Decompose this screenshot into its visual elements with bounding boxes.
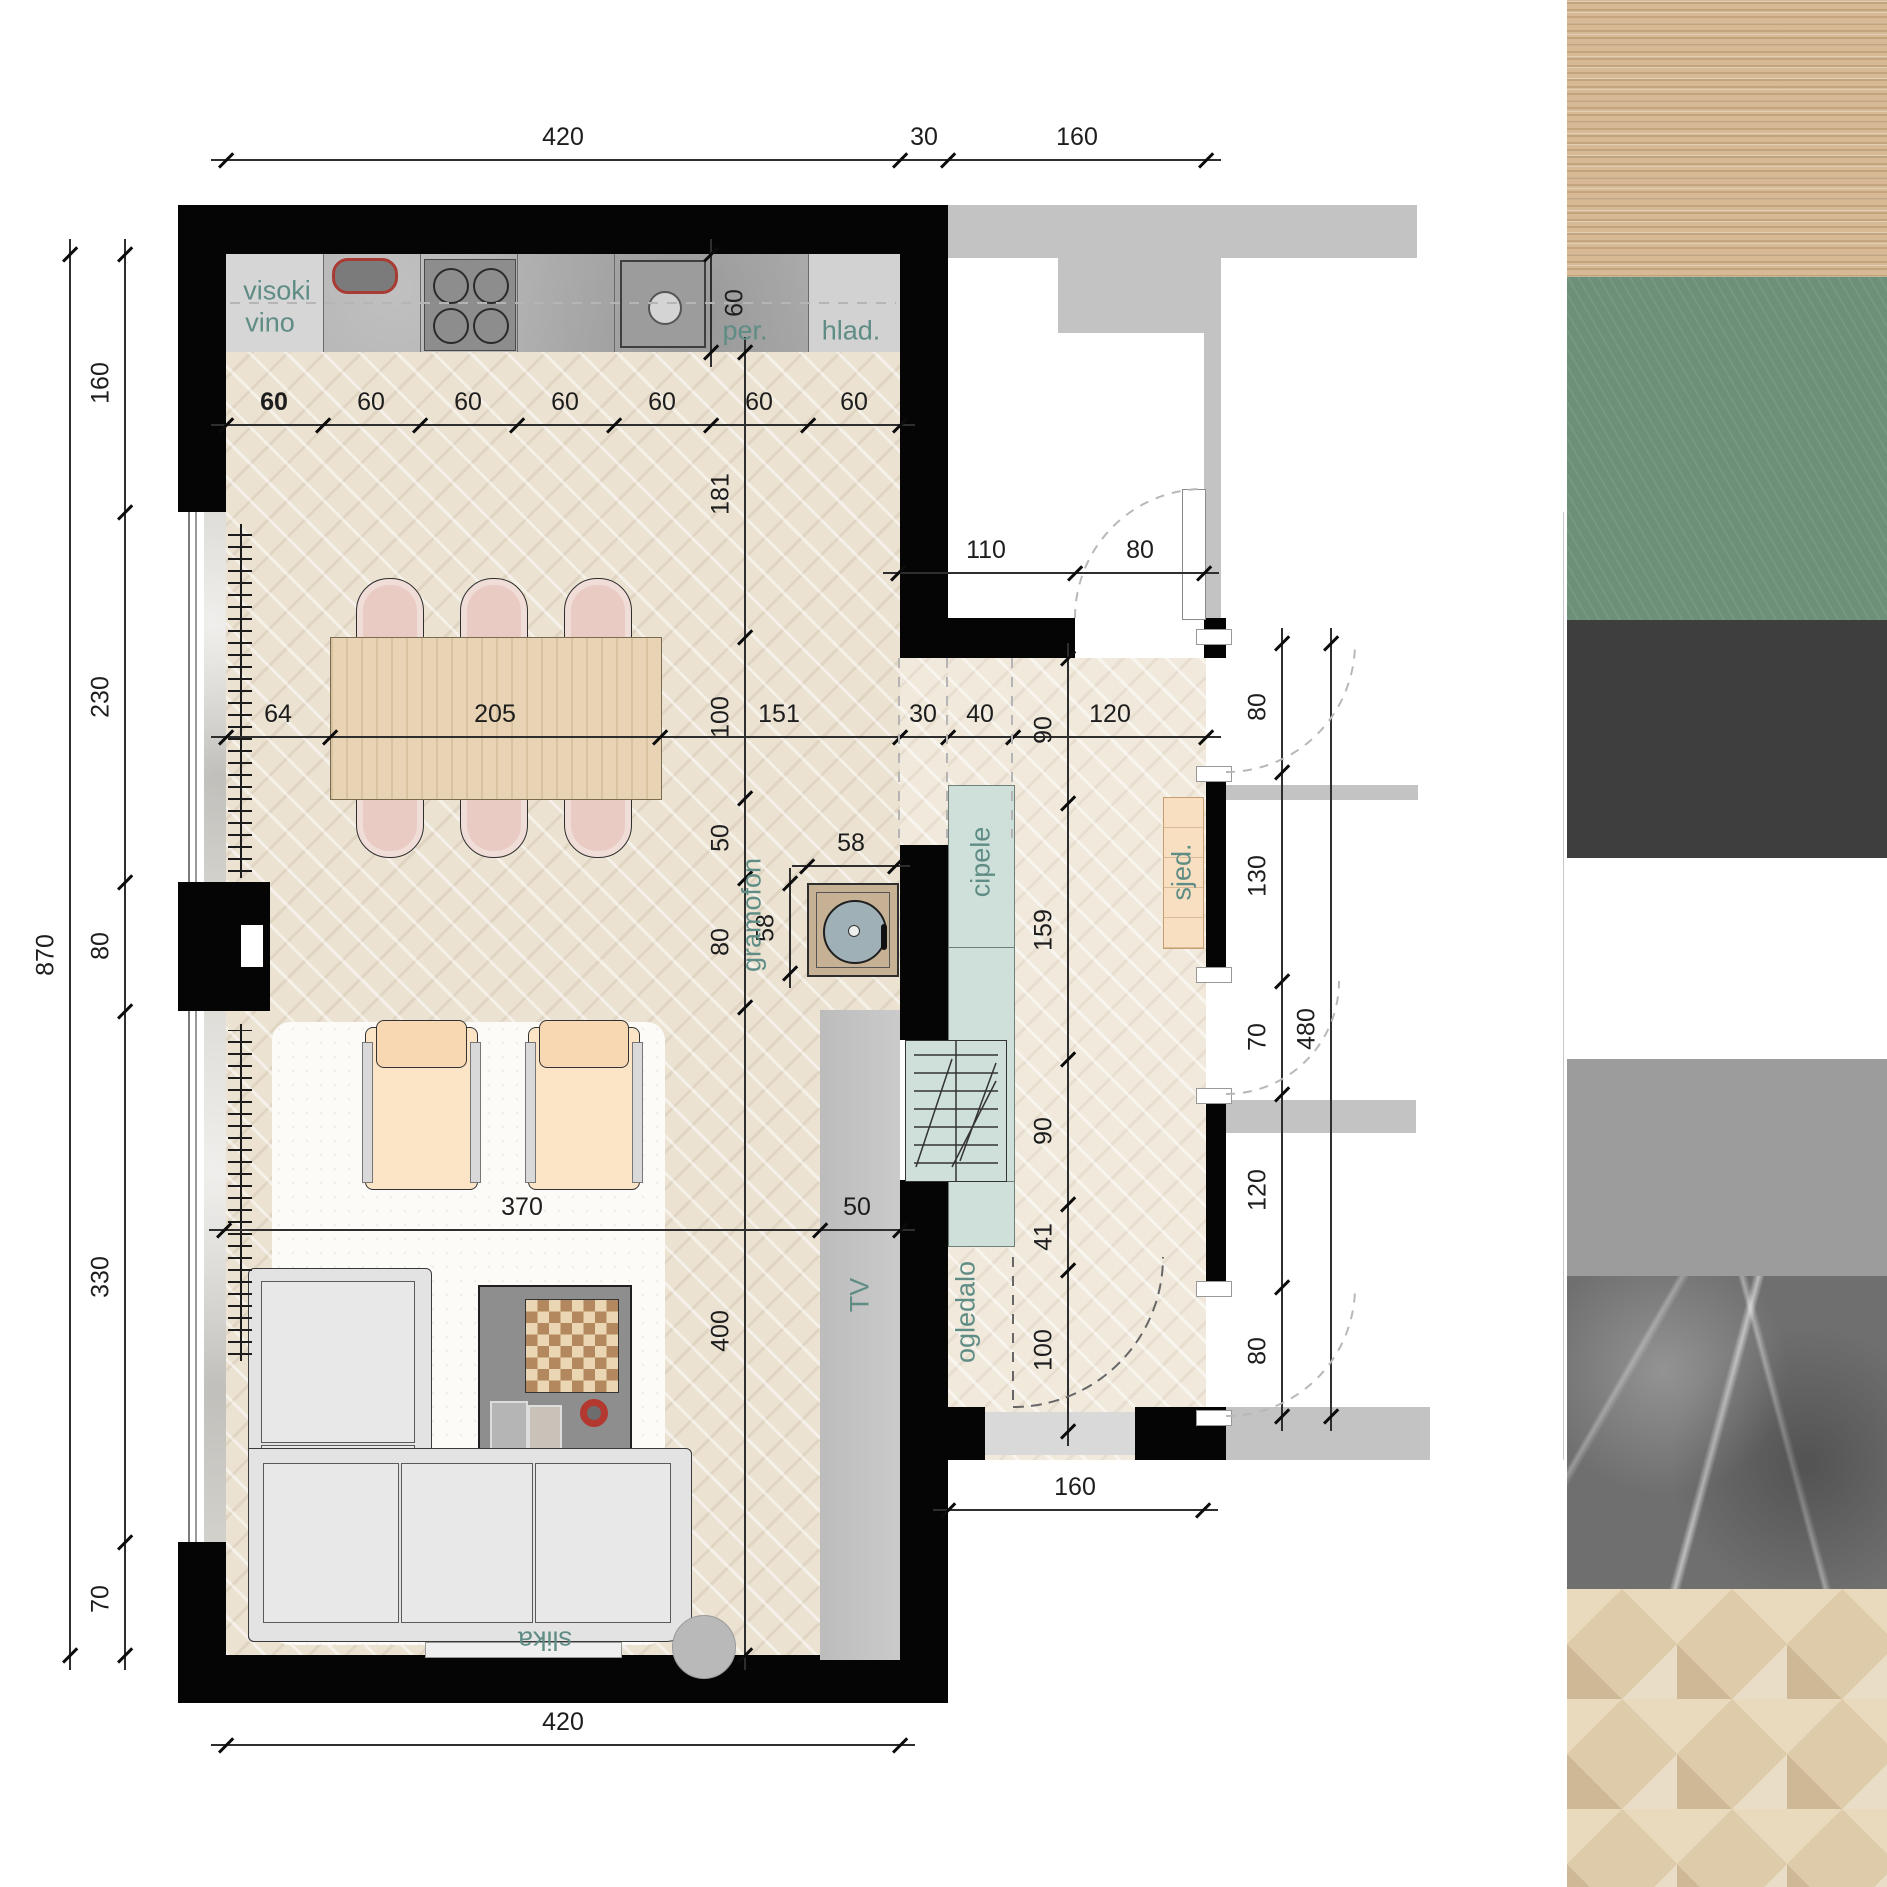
armchair-armrest bbox=[525, 1042, 536, 1183]
dim-label: 205 bbox=[474, 700, 516, 729]
door-jamb bbox=[1196, 766, 1232, 782]
dimension-line bbox=[1067, 643, 1069, 1446]
counter-divider bbox=[808, 254, 809, 352]
door-jamb bbox=[1196, 629, 1232, 645]
dim-label: 30 bbox=[909, 700, 937, 729]
dim-label: 70 bbox=[87, 1585, 116, 1613]
dim-label: 30 bbox=[910, 123, 938, 152]
dim-label: 330 bbox=[87, 1256, 116, 1298]
burner bbox=[473, 268, 509, 304]
armchair bbox=[528, 1027, 640, 1190]
armchair-armrest bbox=[470, 1042, 481, 1183]
dim-label: 151 bbox=[758, 700, 800, 729]
sofa-cushion bbox=[263, 1463, 399, 1623]
cooktop bbox=[424, 259, 516, 351]
dim-label: 120 bbox=[1089, 700, 1131, 729]
cabinet-division bbox=[949, 947, 1014, 948]
wall-hall-top bbox=[900, 618, 1075, 658]
dim-label: 160 bbox=[1056, 123, 1098, 152]
dim-label: 100 bbox=[1030, 1329, 1059, 1371]
dim-label: 159 bbox=[1030, 909, 1059, 951]
room-label: slika bbox=[518, 1625, 572, 1656]
dim-label: 60 bbox=[260, 388, 288, 417]
door-jamb bbox=[1196, 967, 1232, 983]
fireplace-opening bbox=[241, 925, 263, 967]
dimension-line bbox=[933, 1509, 1218, 1511]
room-label: gramofon bbox=[737, 858, 768, 972]
window-left-1 bbox=[178, 512, 226, 882]
sink-tap bbox=[648, 291, 682, 325]
door-jamb bbox=[1196, 1088, 1232, 1104]
armchair-armrest bbox=[632, 1042, 643, 1183]
vinyl-center bbox=[848, 925, 860, 937]
burner bbox=[473, 308, 509, 344]
dim-label: 130 bbox=[1244, 855, 1273, 897]
counter-divider bbox=[323, 254, 324, 352]
gray-wall-mid-band-1 bbox=[1226, 785, 1418, 800]
armchair-armrest bbox=[362, 1042, 373, 1183]
room-label: sjed. bbox=[1167, 843, 1198, 900]
wall-hall-right-1 bbox=[1206, 772, 1226, 981]
dim-label: 160 bbox=[87, 362, 116, 404]
window-glazing-line bbox=[188, 1011, 190, 1542]
swatch-herringbone-oak bbox=[1567, 1589, 1887, 1887]
dim-label: 60 bbox=[648, 388, 676, 417]
dim-label: 58 bbox=[837, 829, 865, 858]
window-glazing-line bbox=[195, 1011, 197, 1542]
dim-label: 60 bbox=[551, 388, 579, 417]
sofa-cushion bbox=[535, 1463, 671, 1623]
dim-label: 60 bbox=[745, 388, 773, 417]
gray-wall-mid-band-2 bbox=[1226, 1100, 1416, 1133]
dim-label: 90 bbox=[1030, 1117, 1059, 1145]
sofa-cushion bbox=[261, 1281, 415, 1443]
dimension-line bbox=[1281, 628, 1283, 1431]
gray-wall-top-band bbox=[948, 205, 1417, 258]
chessboard bbox=[525, 1299, 619, 1393]
dim-label: 64 bbox=[264, 700, 292, 729]
dim-label: 100 bbox=[707, 696, 736, 738]
counter-red-sink bbox=[332, 258, 398, 294]
wall-top bbox=[178, 205, 948, 254]
dimension-line bbox=[211, 1744, 915, 1746]
armchair-headrest bbox=[376, 1020, 467, 1068]
dim-label: 160 bbox=[1054, 1473, 1096, 1502]
round-side-table bbox=[672, 1615, 736, 1679]
dim-label: 480 bbox=[1293, 1008, 1322, 1050]
gray-wall-top-column bbox=[1204, 333, 1221, 618]
counter-divider bbox=[614, 254, 615, 352]
dimension-line bbox=[69, 239, 71, 1670]
wall-left-upper bbox=[178, 205, 226, 512]
photo bbox=[528, 1405, 562, 1453]
dimension-line bbox=[1330, 628, 1332, 1431]
dim-label: 420 bbox=[542, 123, 584, 152]
floorplan-canvas: 4203016060606060606060642051513040120110… bbox=[0, 0, 1887, 1887]
dim-label: 60 bbox=[721, 289, 750, 317]
room-label: hlad. bbox=[822, 316, 881, 347]
dim-label: 60 bbox=[357, 388, 385, 417]
dim-label: 80 bbox=[1244, 1337, 1273, 1365]
dim-label: 420 bbox=[542, 1708, 584, 1737]
armchair bbox=[365, 1027, 478, 1190]
dim-label: 110 bbox=[966, 536, 1006, 565]
swatch-sage-green bbox=[1567, 277, 1887, 620]
dimension-line bbox=[883, 572, 1219, 574]
swatch-white bbox=[1567, 858, 1887, 1059]
kitchen-sink bbox=[620, 260, 706, 348]
burner bbox=[433, 308, 469, 344]
room-label: visoki bbox=[243, 276, 311, 307]
door-leaf-top-room bbox=[1182, 489, 1206, 620]
wall-hall-right-2 bbox=[1206, 1094, 1226, 1287]
red-object bbox=[580, 1399, 608, 1427]
gray-wall-bottom-band bbox=[1226, 1407, 1430, 1460]
room-label: TV bbox=[845, 1278, 876, 1313]
burner bbox=[433, 268, 469, 304]
wall-bottom bbox=[178, 1655, 948, 1703]
dim-label: 40 bbox=[966, 700, 994, 729]
dim-label: 80 bbox=[1244, 693, 1273, 721]
room-label: ogledalo bbox=[951, 1261, 982, 1363]
swatch-mid-gray bbox=[1567, 1059, 1887, 1276]
photo bbox=[490, 1401, 528, 1453]
tone-arm bbox=[881, 924, 887, 950]
window-sill bbox=[204, 512, 226, 882]
dim-label: 80 bbox=[87, 932, 116, 960]
gramophone bbox=[807, 883, 899, 977]
armchair-headrest bbox=[539, 1020, 629, 1068]
window-sill bbox=[204, 1011, 226, 1542]
window-glazing-line bbox=[195, 512, 197, 882]
dim-label: 60 bbox=[840, 388, 868, 417]
room-label: vino bbox=[245, 308, 295, 339]
wall-right-middle bbox=[900, 845, 948, 1040]
wardrobe-niche bbox=[905, 1040, 1007, 1182]
dim-label: 230 bbox=[87, 676, 116, 718]
dim-label: 400 bbox=[707, 1310, 736, 1352]
dim-label: 181 bbox=[707, 473, 736, 515]
kitchen-counter bbox=[226, 254, 900, 352]
window-left-2 bbox=[178, 1011, 226, 1542]
dimension-line bbox=[710, 239, 712, 367]
hanger-symbol bbox=[906, 1041, 1006, 1181]
dim-label: 80 bbox=[1126, 536, 1154, 565]
room-label: per. bbox=[722, 316, 767, 347]
dim-label: 80 bbox=[707, 928, 736, 956]
dimension-line bbox=[209, 1229, 915, 1231]
window-glazing-line bbox=[188, 512, 190, 882]
sofa-main bbox=[248, 1448, 692, 1642]
tv-wall-unit bbox=[820, 1010, 900, 1660]
room-label: cipele bbox=[966, 827, 997, 898]
dim-label: 70 bbox=[1244, 1023, 1273, 1051]
sofa-cushion bbox=[401, 1463, 533, 1623]
dim-label: 370 bbox=[501, 1193, 543, 1222]
dim-label: 50 bbox=[707, 824, 736, 852]
swatch-charcoal bbox=[1567, 620, 1887, 858]
coffee-table bbox=[478, 1285, 632, 1459]
dim-label: 870 bbox=[32, 934, 61, 976]
dim-label: 60 bbox=[454, 388, 482, 417]
radiator bbox=[228, 1030, 252, 1355]
door-jamb bbox=[1196, 1281, 1232, 1297]
counter-divider bbox=[517, 254, 518, 352]
palette-edge-line bbox=[1563, 512, 1564, 1460]
swatch-light-oak-wood bbox=[1567, 0, 1887, 277]
dim-label: 41 bbox=[1030, 1223, 1059, 1251]
entry-threshold bbox=[985, 1412, 1135, 1455]
dimension-line bbox=[124, 239, 126, 1670]
counter-divider bbox=[420, 254, 421, 352]
dim-label: 90 bbox=[1030, 716, 1059, 744]
swatch-gray-marble bbox=[1567, 1276, 1887, 1589]
dimension-line bbox=[211, 159, 1221, 161]
dim-label: 50 bbox=[843, 1193, 871, 1222]
radiator bbox=[228, 530, 252, 872]
door-jamb bbox=[1196, 1410, 1232, 1426]
wall-hall-bottom-left bbox=[898, 1407, 985, 1460]
dim-label: 120 bbox=[1244, 1169, 1273, 1211]
gray-wall-top-block bbox=[1058, 258, 1221, 333]
